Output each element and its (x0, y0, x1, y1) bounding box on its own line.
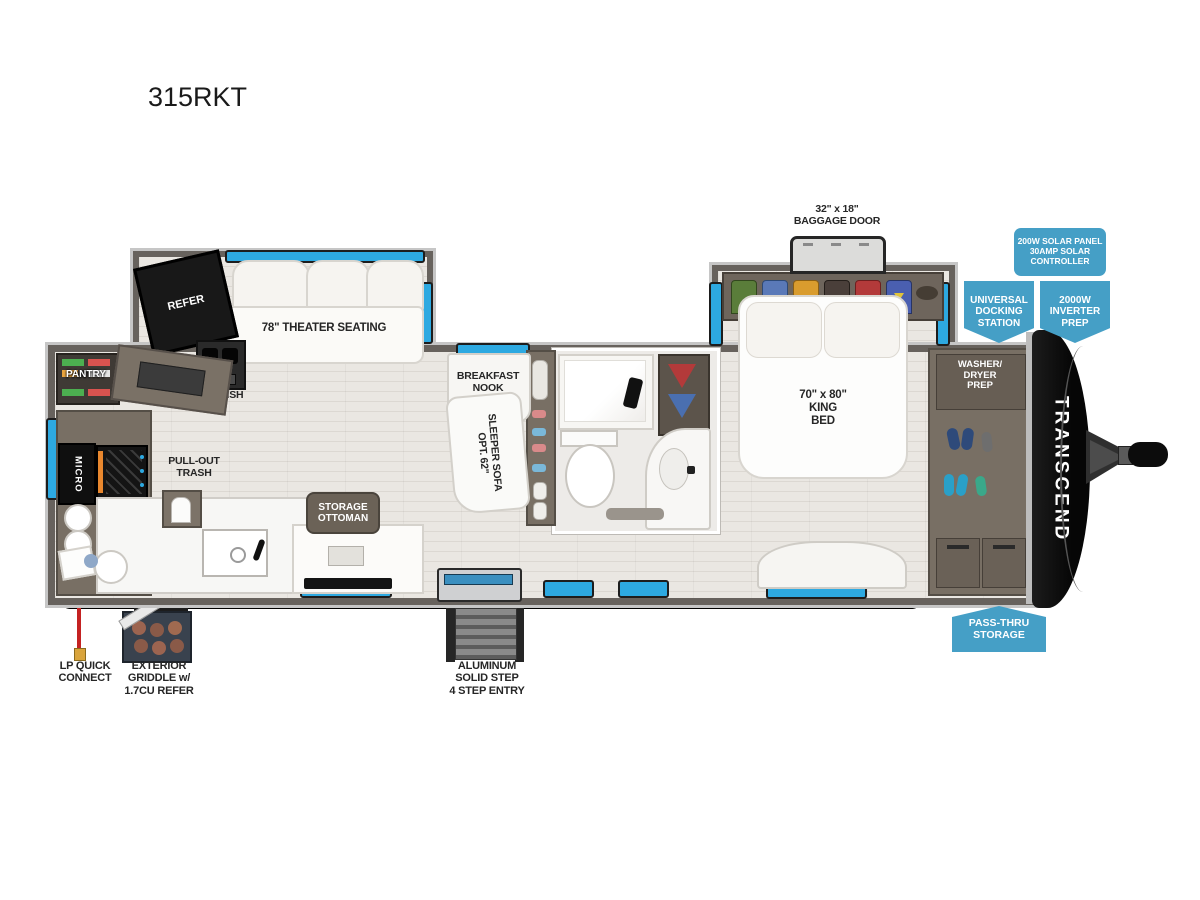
bowl-icon (84, 554, 98, 568)
sink-icon (659, 448, 689, 490)
page-title: 315RKT (148, 82, 247, 113)
sleeper-sofa: OPT. 62" SLEEPER SOFA (445, 391, 531, 515)
baggage-door (790, 236, 886, 274)
shoe-icon (975, 475, 988, 496)
shower (558, 354, 654, 430)
floorplan-page: 315RKT 21' AWNING (0, 0, 1200, 900)
bath-mat (606, 508, 664, 520)
plate-icon (64, 504, 92, 532)
faucet-icon (687, 466, 695, 474)
king-bed: 70" x 80" KING BED (738, 295, 908, 479)
hitch-tongue (1128, 442, 1168, 467)
kitchen-counter (96, 497, 312, 594)
cooktop-handle-icon (98, 451, 103, 493)
theater-cushion (232, 260, 310, 312)
entry-steps (446, 606, 524, 662)
microwave: MICRO (58, 443, 96, 505)
exterior-griddle (122, 611, 192, 663)
docking-callout: UNIVERSAL DOCKING STATION (964, 281, 1034, 343)
entertainment-center (292, 524, 424, 594)
hanging-clothes-icon (668, 364, 696, 388)
plate-icon (94, 550, 128, 584)
micro-label: MICRO (72, 456, 83, 493)
bath-wardrobe (658, 354, 710, 436)
tv-icon (304, 578, 392, 589)
breakfast-nook-label: BREAKFAST NOOK (445, 371, 531, 395)
theater-cushion (306, 260, 370, 312)
storage-ottoman: STORAGE OTTOMAN (306, 492, 380, 534)
sleeper-sofa-label: OPT. 62" SLEEPER SOFA (473, 413, 503, 493)
hanging-clothes-icon (668, 394, 696, 418)
front-cap: TRANSCEND (1032, 330, 1090, 608)
front-closet: WASHER/ DRYER PREP (928, 348, 1036, 596)
door-side-window-2 (618, 580, 669, 598)
shoe-icon (944, 474, 954, 496)
door-side-window-1 (543, 580, 594, 598)
pullout-trash (162, 490, 202, 528)
pillow (824, 302, 900, 358)
cooktop (96, 445, 148, 501)
shoe-icon (955, 473, 969, 496)
solar-callout: 200W SOLAR PANEL 30AMP SOLAR CONTROLLER (1014, 228, 1106, 276)
drain-icon (230, 547, 246, 563)
bedroom-slide-left-window (709, 282, 723, 346)
baggage-door-label: 32" x 18" BAGGAGE DOOR (780, 204, 894, 228)
theater-cushion (366, 260, 424, 312)
toilet (565, 444, 615, 508)
bedroom-dresser (757, 541, 907, 589)
pillow (746, 302, 822, 358)
passthru-callout: PASS-THRU STORAGE (952, 606, 1046, 652)
theater-seating (222, 306, 424, 364)
trash-label: PULL-OUT TRASH (146, 456, 242, 480)
refer-label: REFER (166, 293, 205, 313)
entry-door (437, 568, 522, 602)
griddle-label: EXTERIOR GRIDDLE w/ 1.7CU REFER (104, 660, 214, 697)
ottoman-label: STORAGE OTTOMAN (318, 502, 368, 524)
shoe-icon (946, 427, 961, 451)
theater-seating-label: 78" THEATER SEATING (238, 322, 410, 335)
console-icon (328, 546, 364, 566)
shoe-icon (981, 432, 993, 453)
hat-icon (916, 286, 938, 300)
king-bed-label: 70" x 80" KING BED (768, 389, 878, 428)
steps-label: ALUMINUM SOLID STEP 4 STEP ENTRY (428, 660, 546, 697)
washer-dryer-label: WASHER/ DRYER PREP (940, 360, 1020, 392)
pantry-label: PANTRY (60, 369, 112, 380)
shoe-icon (961, 427, 975, 450)
